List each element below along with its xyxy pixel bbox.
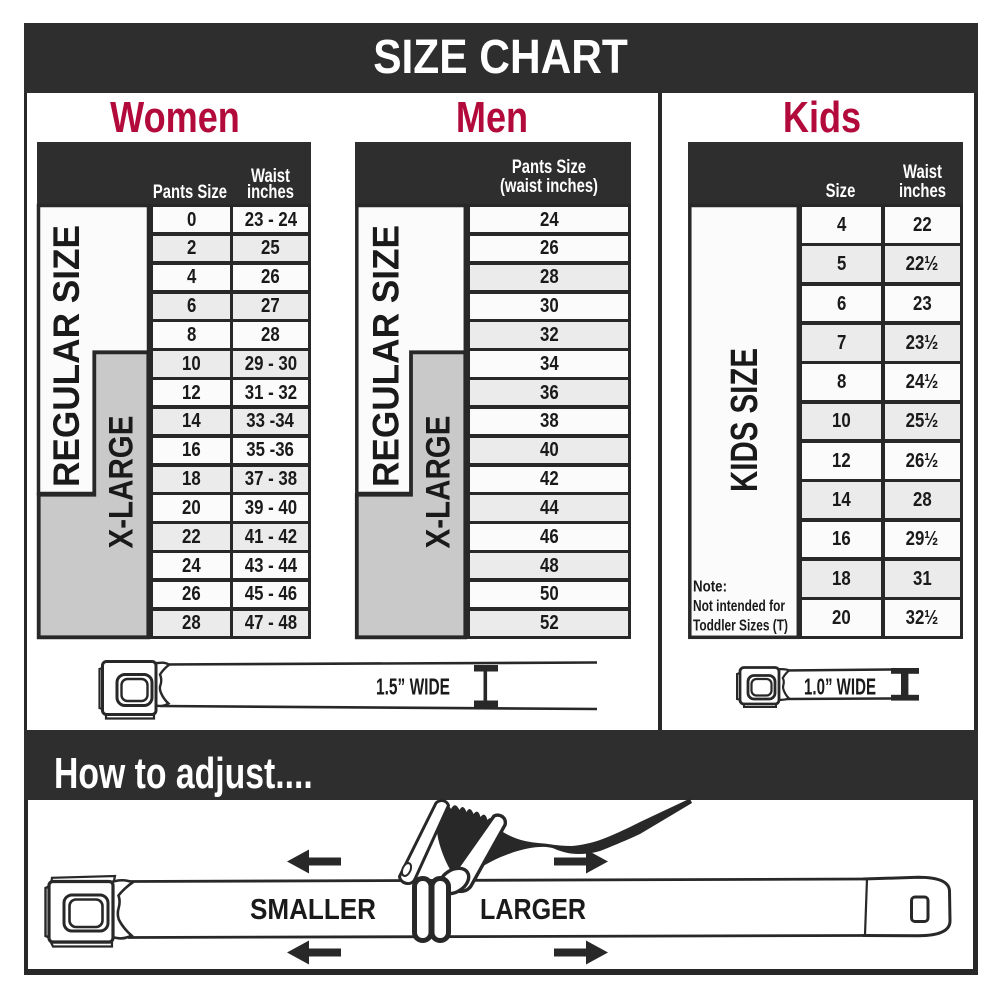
svg-text:SMALLER: SMALLER	[250, 894, 376, 926]
svg-text:LARGER: LARGER	[480, 894, 586, 926]
